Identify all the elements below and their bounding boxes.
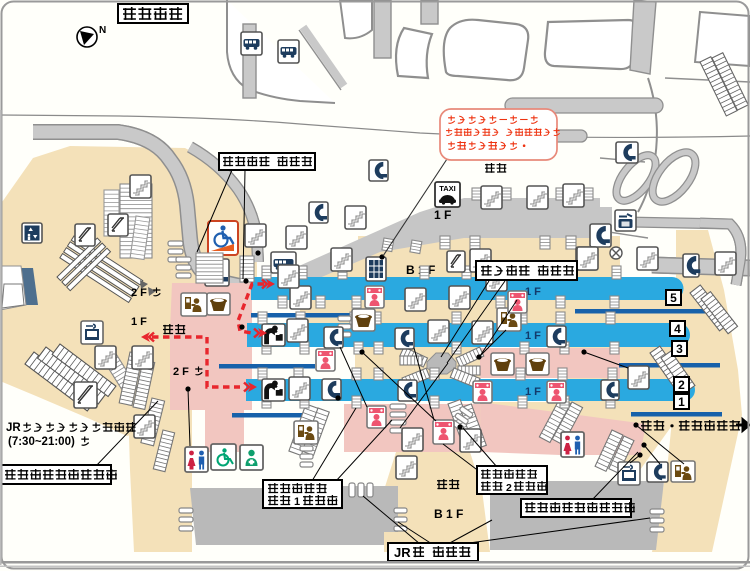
svg-text:B 1 F: B 1 F: [434, 507, 463, 521]
svg-text:JR: JR: [394, 545, 411, 560]
svg-text:TAXI: TAXI: [439, 184, 456, 193]
svg-text:2: 2: [506, 482, 512, 494]
svg-text:2: 2: [678, 378, 685, 392]
svg-text:1: 1: [678, 395, 685, 409]
svg-text:1 F: 1 F: [434, 208, 451, 222]
svg-text:(7:30~21:00): (7:30~21:00): [8, 436, 75, 448]
svg-text:4: 4: [674, 322, 681, 336]
svg-text:N: N: [99, 25, 106, 36]
svg-text:1 F: 1 F: [525, 330, 541, 342]
svg-text:5: 5: [670, 291, 677, 305]
svg-text:1 F: 1 F: [131, 316, 147, 328]
svg-text:2 F: 2 F: [173, 366, 189, 378]
svg-text:2 F: 2 F: [131, 287, 147, 299]
svg-text:3: 3: [676, 342, 683, 356]
svg-text:JR: JR: [6, 422, 21, 434]
svg-text:1: 1: [294, 496, 300, 508]
